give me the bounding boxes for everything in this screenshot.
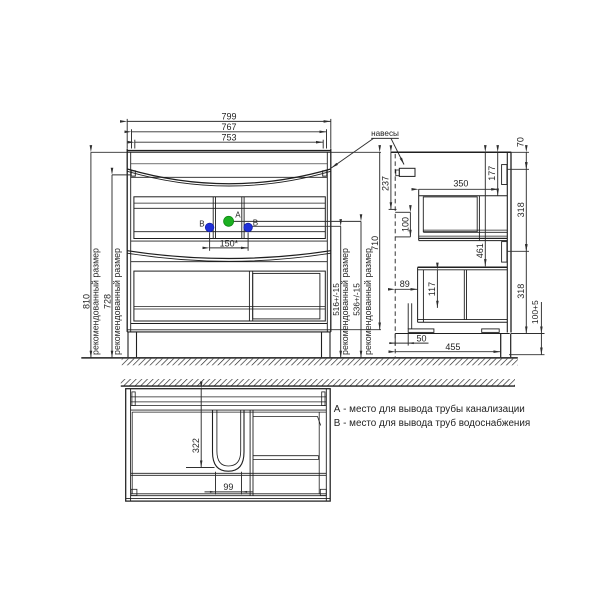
svg-text:B: B [199, 219, 204, 228]
svg-text:318: 318 [516, 284, 526, 299]
svg-text:70: 70 [516, 137, 526, 147]
svg-text:рекомендованный размер: рекомендованный размер [340, 248, 350, 355]
svg-text:150*: 150* [220, 238, 239, 248]
svg-text:89: 89 [400, 279, 410, 289]
svg-text:177: 177 [487, 166, 497, 181]
svg-text:100+5: 100+5 [530, 300, 540, 324]
svg-text:710: 710 [370, 236, 380, 251]
svg-text:B: B [253, 219, 258, 228]
svg-text:A: A [235, 211, 241, 220]
svg-text:117: 117 [427, 282, 437, 296]
svg-text:237: 237 [381, 176, 391, 191]
svg-text:99: 99 [223, 482, 233, 492]
svg-text:753: 753 [221, 132, 236, 142]
svg-text:322: 322 [191, 438, 201, 453]
svg-text:В - место для вывода труб водо: В - место для вывода труб водоснабжения [334, 418, 530, 429]
svg-text:318: 318 [516, 202, 526, 217]
svg-text:767: 767 [221, 122, 236, 132]
svg-text:навесы: навесы [371, 129, 399, 138]
svg-text:50: 50 [416, 333, 426, 343]
svg-text:рекомендованный размер: рекомендованный размер [90, 248, 100, 355]
svg-text:350: 350 [453, 179, 468, 189]
svg-text:455: 455 [445, 342, 460, 352]
svg-text:рекомендованный размер: рекомендованный размер [112, 248, 122, 355]
svg-text:100: 100 [401, 217, 411, 232]
svg-text:461: 461 [475, 243, 485, 258]
svg-text:799: 799 [221, 112, 236, 122]
svg-text:рекомендованный размер: рекомендованный размер [363, 248, 373, 355]
svg-text:А - место для вывода трубы кан: А - место для вывода трубы канализации [334, 404, 525, 415]
svg-text:536+/-15: 536+/-15 [352, 283, 361, 316]
svg-text:728: 728 [103, 294, 113, 309]
